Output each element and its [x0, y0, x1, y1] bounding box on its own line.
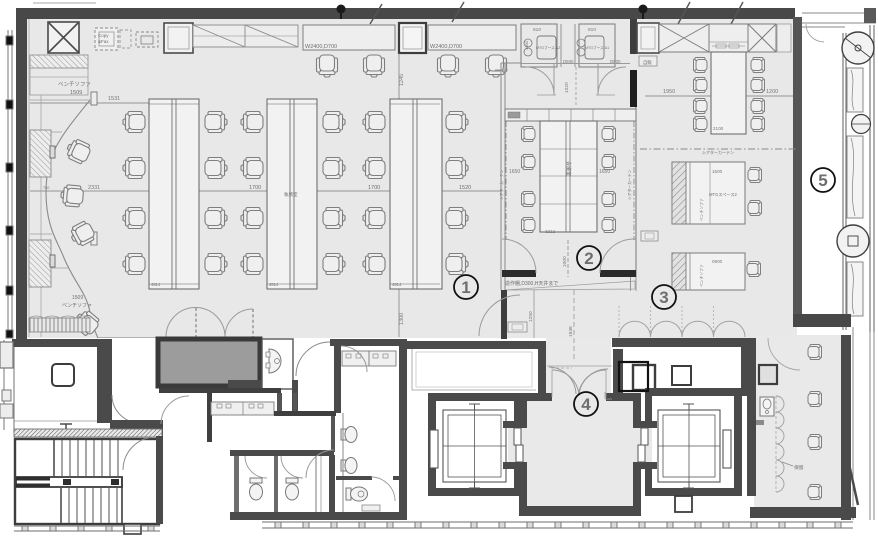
svg-text:1200: 1200: [766, 89, 778, 95]
svg-text:1: 1: [461, 278, 470, 297]
svg-text:810: 810: [533, 27, 541, 33]
svg-text:3212: 3212: [545, 229, 556, 234]
svg-text:2331: 2331: [88, 185, 100, 191]
svg-text:W2400,D700: W2400,D700: [305, 44, 337, 50]
svg-text:1938: 1938: [568, 326, 574, 337]
svg-text:シアターカーテン: シアターカーテン: [499, 169, 504, 200]
svg-text:1520: 1520: [459, 185, 471, 191]
svg-text:MTGブース-A2: MTGブース-A2: [536, 45, 560, 50]
svg-text:1500: 1500: [712, 169, 723, 174]
svg-text:5: 5: [818, 171, 827, 190]
svg-text:&Fax: &Fax: [98, 39, 109, 44]
svg-text:4814: 4814: [269, 282, 279, 287]
svg-text:1509: 1509: [70, 90, 82, 96]
svg-text:執務室: 執務室: [284, 191, 298, 198]
svg-text:1300: 1300: [399, 313, 405, 325]
svg-text:2100: 2100: [713, 126, 724, 131]
svg-text:1509: 1509: [72, 295, 83, 301]
svg-text:会議室: 会議室: [565, 161, 572, 176]
svg-text:シアターカーテン: シアターカーテン: [702, 149, 734, 155]
svg-text:Copy: Copy: [98, 33, 109, 38]
svg-text:810: 810: [588, 27, 596, 33]
svg-text:ベンチソファ: ベンチソファ: [62, 303, 92, 309]
svg-text:4814: 4814: [392, 282, 402, 287]
svg-text:ベンチソファ: ベンチソファ: [699, 198, 704, 221]
svg-text:2: 2: [584, 249, 593, 268]
svg-text:W2400,D700: W2400,D700: [430, 44, 462, 50]
svg-text:4: 4: [581, 395, 591, 414]
svg-text:1650: 1650: [599, 169, 610, 175]
svg-text:1700: 1700: [368, 185, 380, 191]
svg-text:1950: 1950: [663, 89, 675, 95]
svg-text:保留: 保留: [794, 464, 804, 471]
svg-text:1020: 1020: [564, 82, 570, 93]
svg-text:3: 3: [659, 288, 668, 307]
svg-text:1245: 1245: [399, 74, 405, 86]
svg-text:MTGスペース2: MTGスペース2: [709, 192, 738, 197]
svg-text:MTGブース-A1: MTGブース-A1: [585, 45, 609, 50]
svg-text:0900: 0900: [712, 259, 723, 264]
svg-text:造作棚,D300,H天井まで: 造作棚,D300,H天井まで: [505, 280, 558, 287]
svg-text:自販: 自販: [643, 59, 652, 66]
svg-text:1000: 1000: [524, 40, 529, 50]
svg-text:ベンチソファ: ベンチソファ: [699, 264, 704, 287]
svg-text:1650: 1650: [509, 169, 520, 175]
svg-text:1531: 1531: [108, 96, 120, 102]
svg-text:シアターカーテン: シアターカーテン: [627, 169, 632, 200]
svg-text:1000: 1000: [562, 256, 568, 267]
svg-text:1700: 1700: [249, 185, 261, 191]
svg-text:ベンチソファ: ベンチソファ: [58, 81, 91, 88]
svg-text:4814: 4814: [151, 282, 161, 287]
svg-text:1250: 1250: [528, 311, 534, 322]
